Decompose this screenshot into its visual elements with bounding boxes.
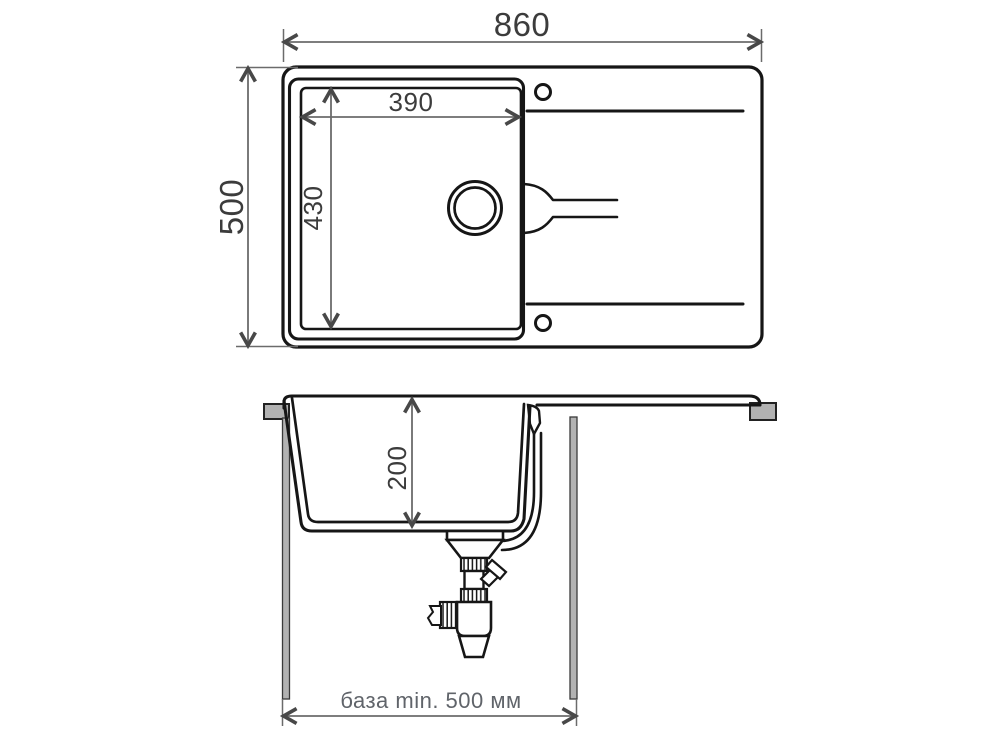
siphon-cup [457, 602, 491, 636]
top-view [283, 67, 762, 347]
drain-hole-outer [449, 182, 502, 235]
drain-channel-lower [524, 217, 617, 233]
cabinet-panel-right [570, 417, 577, 699]
dim-label-860: 860 [494, 6, 551, 43]
thread-coupling-lower [461, 589, 487, 602]
thread-coupling-upper [461, 558, 487, 571]
outlet-pipe-stub [428, 606, 441, 625]
dim-overall-depth: 500 [213, 68, 298, 347]
faucet-hole-top [536, 85, 551, 100]
drain-funnel [447, 540, 503, 558]
dim-cabinet-base: база min. 500 мм [283, 688, 577, 726]
outlet-thread-coupling [440, 602, 457, 628]
dim-label-200: 200 [382, 446, 412, 491]
bowl-inner-edge [301, 88, 521, 329]
dim-label-430: 430 [298, 186, 328, 231]
drain-washer [447, 531, 503, 540]
dim-bowl-depth: 200 [382, 400, 419, 526]
sink-technical-drawing: 860 500 390 430 [0, 0, 1000, 750]
dim-bowl-length: 430 [298, 90, 338, 327]
dim-label-base: база min. 500 мм [340, 688, 521, 713]
cabinet-panel-left [283, 418, 290, 699]
drain-channel-upper [524, 184, 617, 200]
dim-overall-width: 860 [284, 6, 762, 62]
section-view [264, 396, 776, 699]
siphon-taper [459, 636, 489, 657]
dim-label-500: 500 [213, 179, 250, 236]
faucet-hole-bottom [536, 316, 551, 331]
drawing-svg: 860 500 390 430 [0, 0, 1000, 750]
dim-bowl-width: 390 [303, 87, 519, 124]
drain-hole-inner [455, 188, 496, 229]
dim-label-390: 390 [389, 87, 434, 117]
sink-flange-profile [284, 396, 760, 408]
